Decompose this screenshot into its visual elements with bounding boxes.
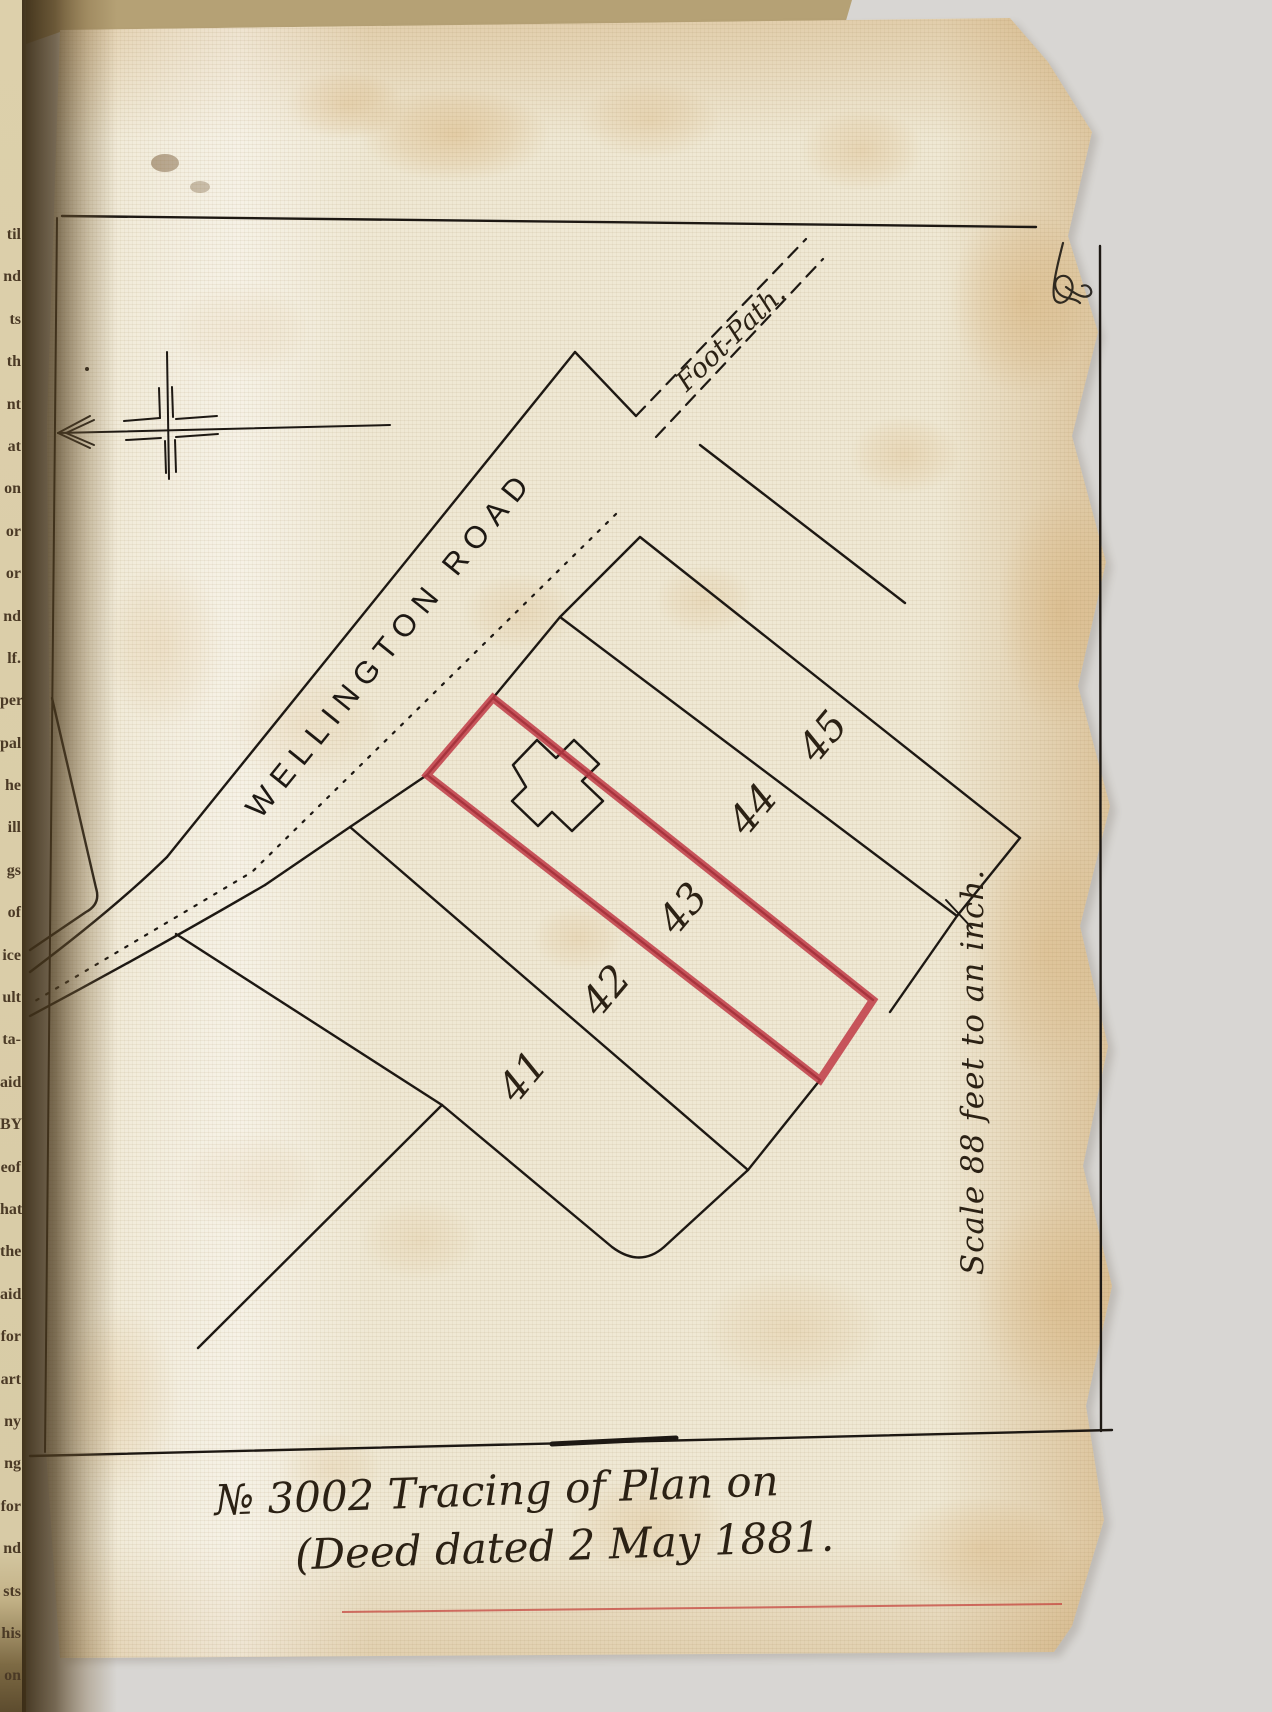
scanned-deed-plan-page: tilndtsthntatonororndlf.perpalheillgsofi…	[0, 0, 1272, 1712]
scale-note: Scale 88 feet to an inch.	[955, 869, 991, 1275]
plan-border-right	[1100, 246, 1101, 1431]
plan-drawing: WELLINGTON ROAD Foot-Path. 41 42 43 44 4…	[0, 0, 1272, 1712]
binding-gutter-shadow	[22, 0, 117, 1712]
page-toning	[0, 0, 1272, 1712]
